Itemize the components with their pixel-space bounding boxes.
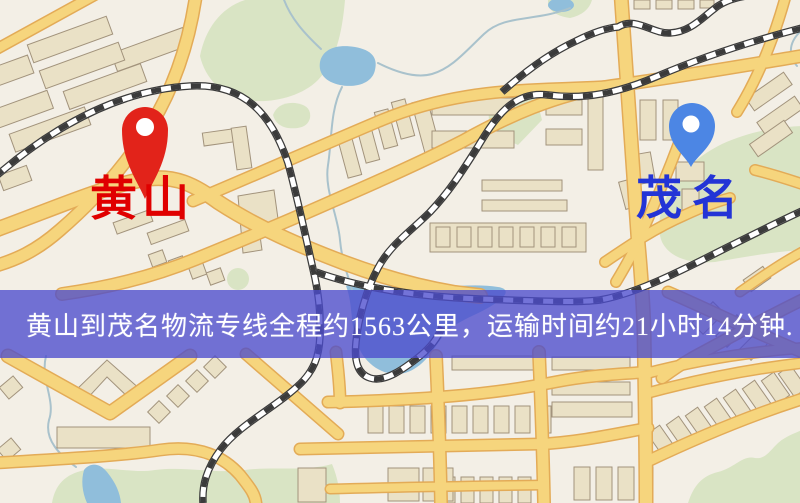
destination-pin-hole: [683, 116, 700, 133]
destination-label: 茂名: [636, 176, 748, 222]
origin-label: 黄山: [90, 177, 194, 224]
route-info-text: 黄山到茂名物流专线全程约1563公里，运输时间约21小时14分钟.: [0, 306, 794, 343]
map-screenshot: 黄山 茂名 黄山到茂名物流专线全程约1563公里，运输时间约21小时14分钟.: [0, 0, 800, 503]
route-info-banner: 黄山到茂名物流专线全程约1563公里，运输时间约21小时14分钟.: [0, 290, 800, 358]
map-canvas[interactable]: [0, 0, 800, 503]
origin-pin-hole: [136, 118, 154, 136]
